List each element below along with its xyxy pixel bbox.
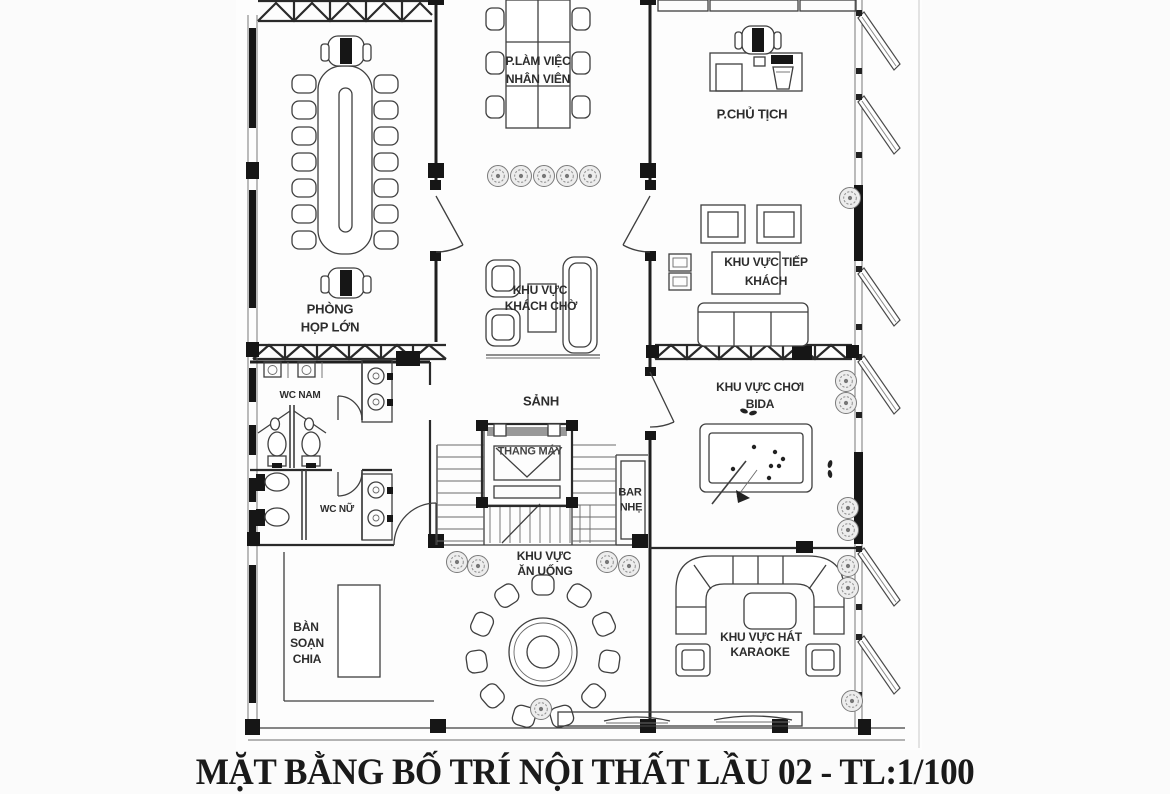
- label-waiting-area-line1: KHU VỰC: [513, 284, 568, 296]
- label-billiards-line1: KHU VỰC CHƠI: [716, 381, 804, 393]
- label-wc-men: WC NAM: [279, 391, 320, 401]
- label-meeting-room-line1: PHÒNG: [307, 303, 354, 316]
- drawing-title: MẶT BẰNG BỐ TRÍ NỘI THẤT LẦU 02 - TL:1/1…: [196, 751, 975, 794]
- label-wc-women: WC NỮ: [320, 505, 354, 515]
- page: { "document": { "title": "MẶT BẰNG BỐ TR…: [0, 0, 1170, 785]
- serving-table: [338, 585, 380, 677]
- floor-plan-drawing: [0, 0, 1170, 785]
- label-dining-line2: ĂN UỐNG: [517, 565, 572, 577]
- label-reception-area-line1: KHU VỰC TIẾP: [724, 256, 808, 268]
- label-serving-line1: BÀN: [293, 621, 318, 633]
- label-lobby: SẢNH: [523, 395, 559, 408]
- label-karaoke-line1: KHU VỰC HÁT: [720, 631, 802, 643]
- label-bar-line1: BAR: [618, 488, 641, 499]
- label-bar-line2: NHẸ: [620, 503, 643, 514]
- label-karaoke-line2: KARAOKE: [730, 646, 789, 658]
- label-elevator: THANG MÁY: [498, 447, 563, 458]
- label-waiting-area-line2: KHÁCH CHỜ: [505, 300, 577, 312]
- label-billiards-line2: BIDA: [746, 398, 775, 410]
- label-serving-line2: SOẠN: [290, 637, 324, 649]
- label-meeting-room-line2: HỌP LỚN: [301, 321, 360, 334]
- label-dining-line1: KHU VỰC: [517, 550, 572, 562]
- label-reception-area-line2: KHÁCH: [745, 275, 787, 287]
- label-chairman-office: P.CHỦ TỊCH: [717, 108, 788, 121]
- label-staff-office-line1: P.LÀM VIỆC: [505, 55, 570, 67]
- label-serving-line3: CHIA: [293, 653, 322, 665]
- label-staff-office-line2: NHÂN VIÊN: [506, 73, 570, 85]
